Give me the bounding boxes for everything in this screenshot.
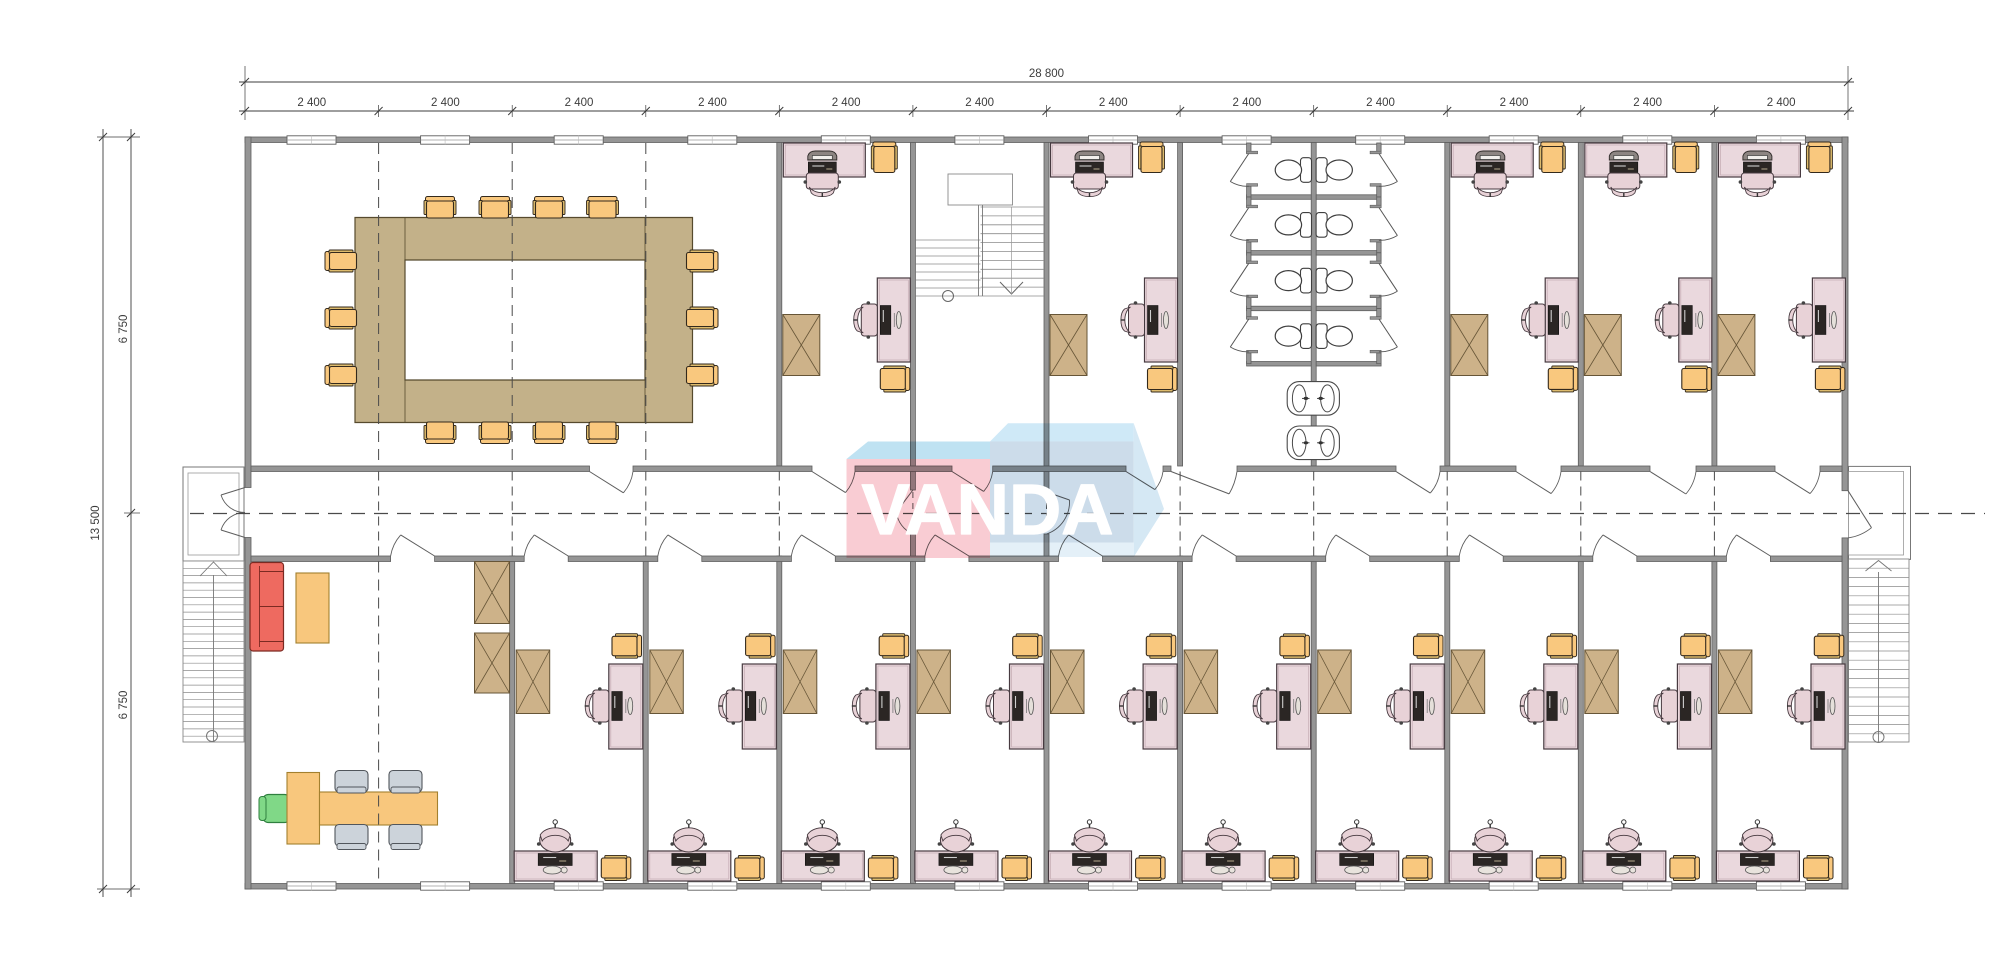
- svg-text:2 400: 2 400: [1767, 97, 1796, 109]
- svg-text:2 400: 2 400: [1633, 97, 1662, 109]
- svg-text:6 750: 6 750: [118, 691, 130, 720]
- svg-text:2 400: 2 400: [698, 97, 727, 109]
- svg-text:28 800: 28 800: [1029, 68, 1064, 80]
- svg-text:VANDA: VANDA: [862, 471, 1114, 550]
- svg-text:2 400: 2 400: [965, 97, 994, 109]
- svg-text:2 400: 2 400: [1233, 97, 1262, 109]
- svg-text:6 750: 6 750: [118, 315, 130, 344]
- svg-text:2 400: 2 400: [832, 97, 861, 109]
- svg-text:2 400: 2 400: [1366, 97, 1395, 109]
- svg-text:2 400: 2 400: [565, 97, 594, 109]
- svg-text:2 400: 2 400: [431, 97, 460, 109]
- svg-text:13 500: 13 500: [90, 505, 102, 540]
- svg-text:2 400: 2 400: [1500, 97, 1529, 109]
- svg-text:2 400: 2 400: [1099, 97, 1128, 109]
- svg-text:2 400: 2 400: [297, 97, 326, 109]
